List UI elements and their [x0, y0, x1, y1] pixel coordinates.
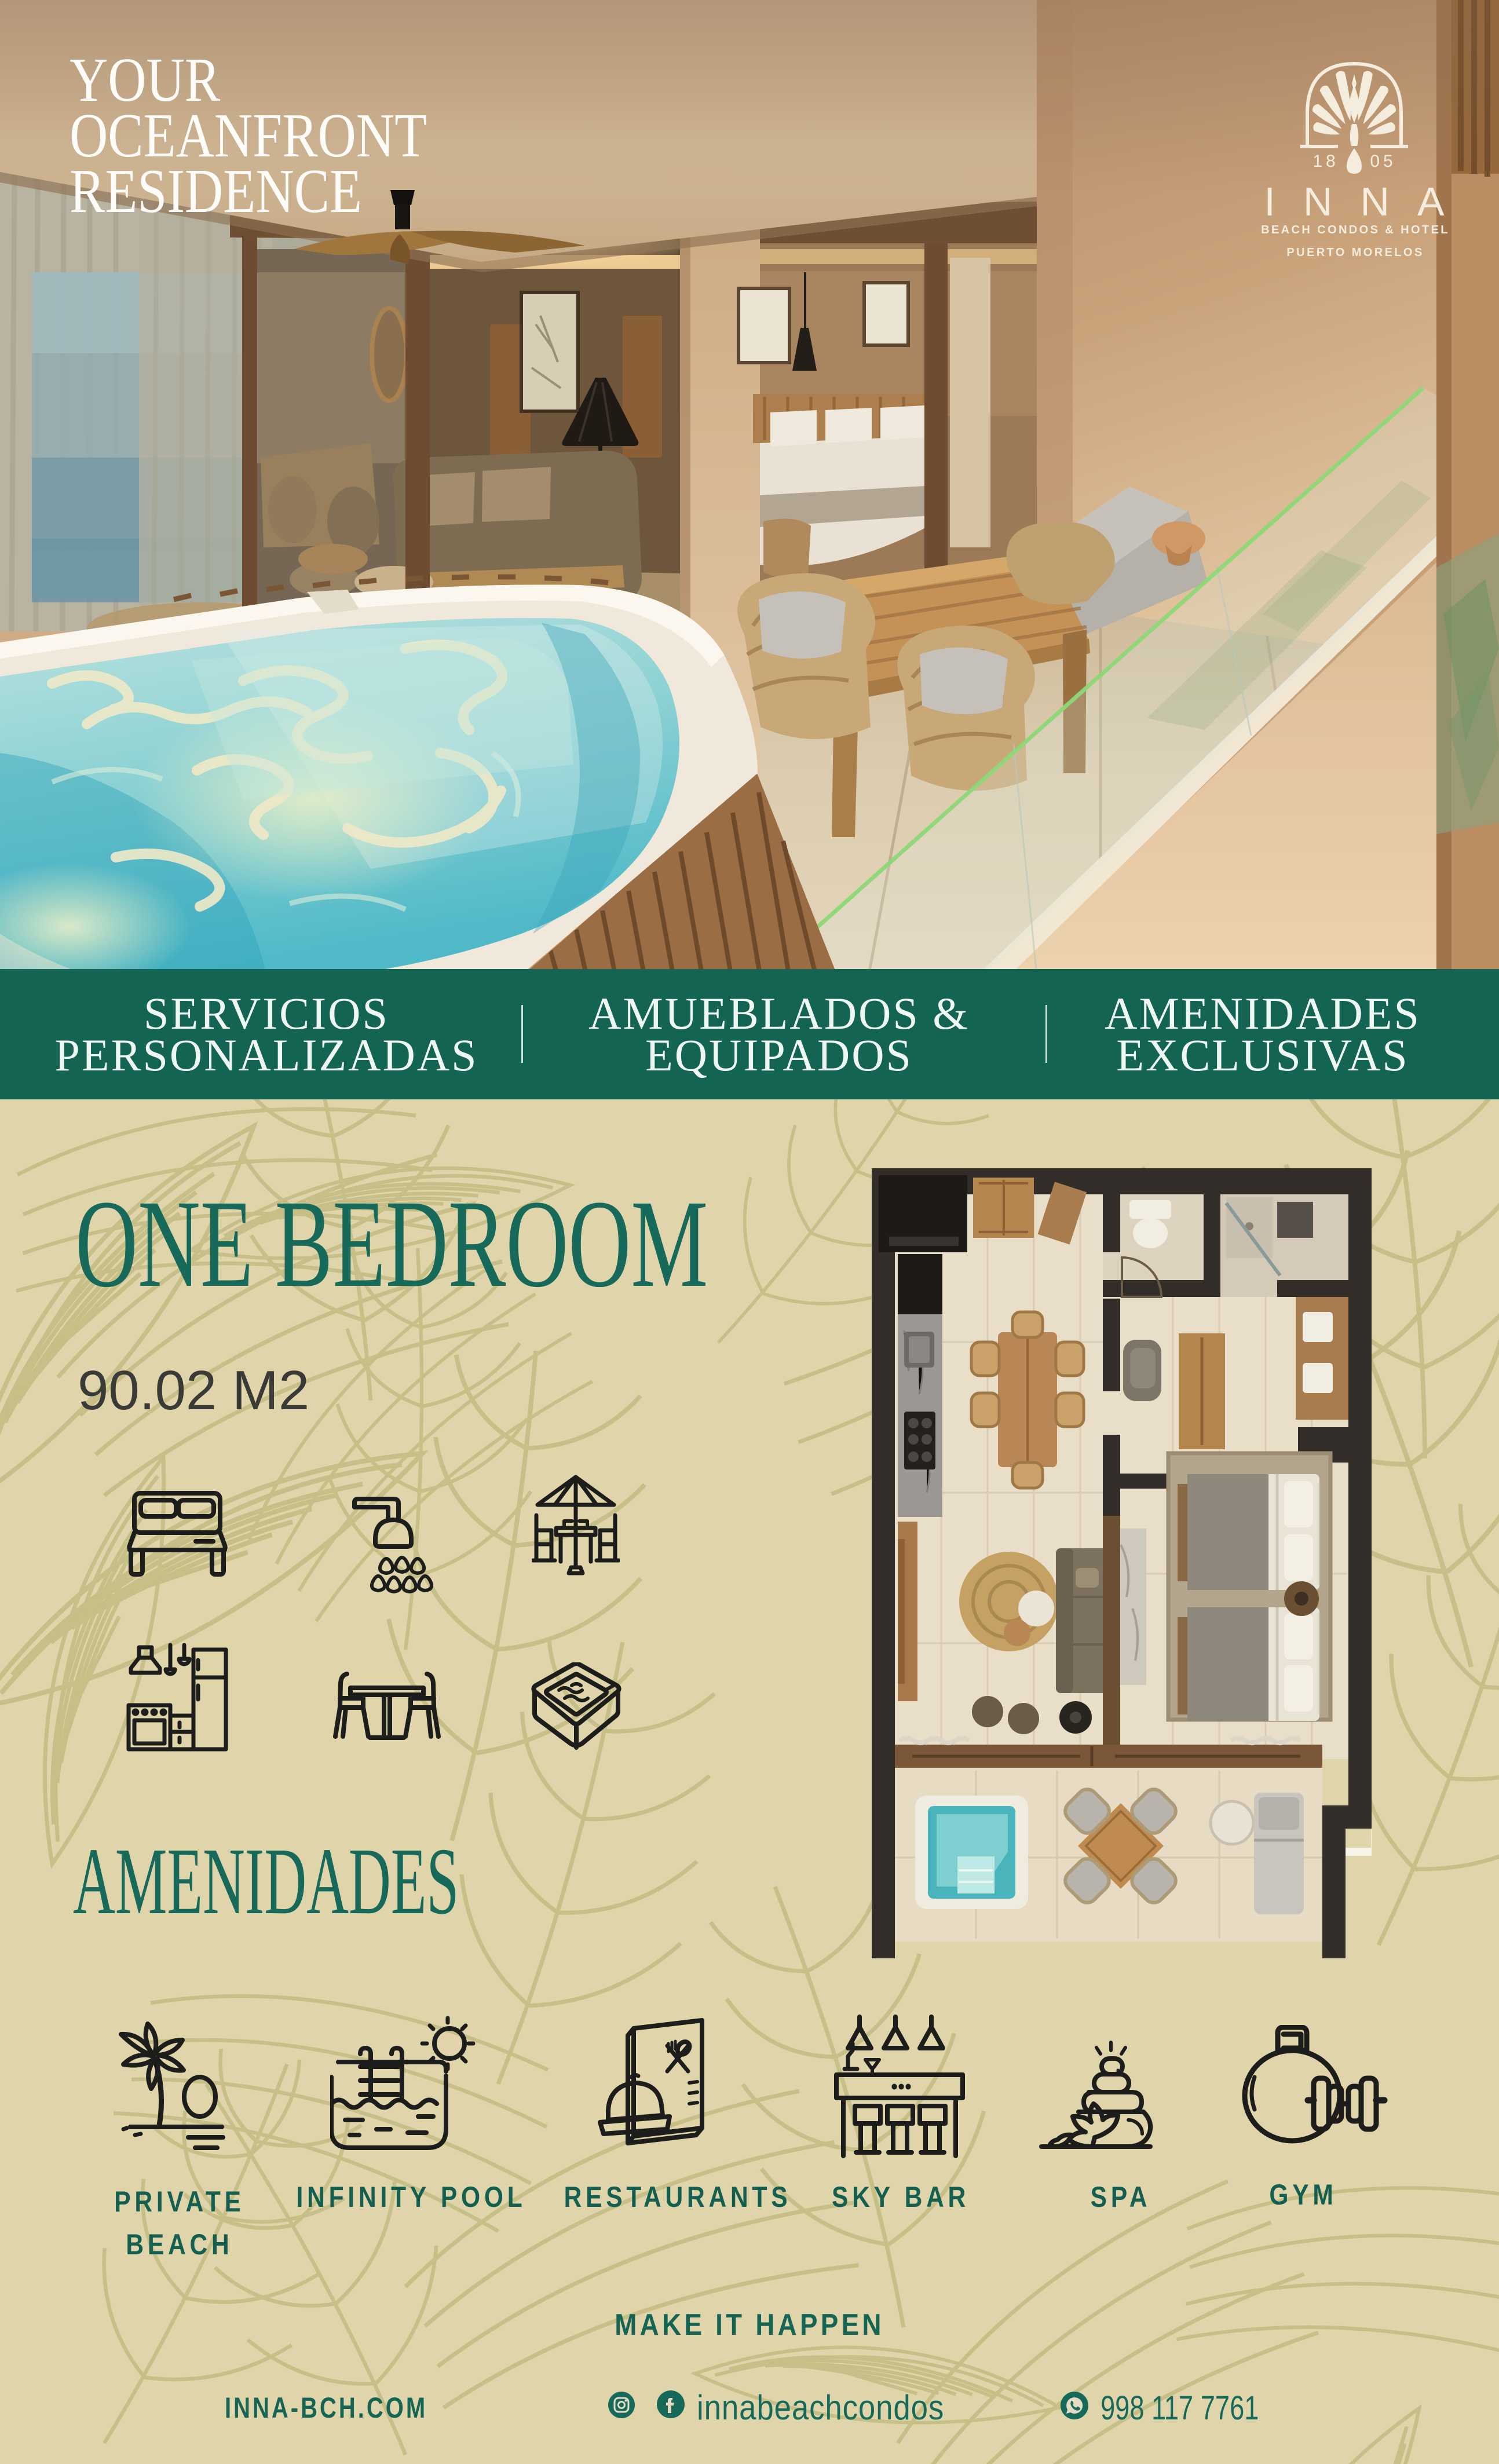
svg-text:05: 05 — [1370, 152, 1396, 171]
svg-text:18: 18 — [1312, 152, 1339, 171]
svg-text:BEACH CONDOS & HOTEL: BEACH CONDOS & HOTEL — [1261, 224, 1450, 236]
svg-text:INNA: INNA — [1264, 179, 1472, 224]
svg-text:PUERTO MORELOS: PUERTO MORELOS — [1286, 246, 1424, 259]
